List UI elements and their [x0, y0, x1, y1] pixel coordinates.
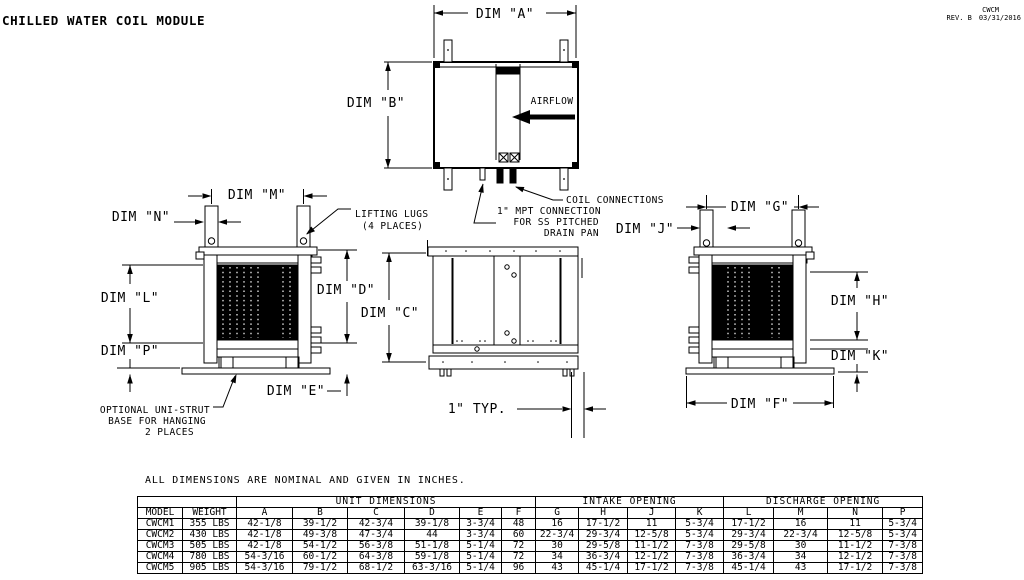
model-cell: CWCM1 — [138, 519, 183, 530]
table-cell: 905 LBS — [183, 563, 237, 574]
table-cell: 355 LBS — [183, 519, 237, 530]
table-cell: 72 — [502, 552, 536, 563]
column-header-d: D — [405, 508, 460, 519]
table-cell: 5-3/4 — [676, 519, 724, 530]
table-cell: 12-5/8 — [628, 530, 676, 541]
table-cell: 12-5/8 — [828, 530, 883, 541]
table-cell: 64-3/8 — [348, 552, 405, 563]
unistrut-label-1: OPTIONAL UNI-STRUT — [100, 405, 210, 416]
airflow-label: AIRFLOW — [531, 96, 574, 107]
column-header-n: N — [828, 508, 883, 519]
column-header-l: L — [724, 508, 774, 519]
column-header-h: H — [579, 508, 628, 519]
model-cell: CWCM2 — [138, 530, 183, 541]
dim-g-label: DIM "G" — [731, 200, 789, 215]
table-cell: 11 — [628, 519, 676, 530]
drawing-views: DIM "A" AIRFLOW — [0, 0, 1024, 470]
column-header-e: E — [460, 508, 502, 519]
column-header-a: A — [237, 508, 293, 519]
table-cell: 3-3/4 — [460, 530, 502, 541]
table-cell: 54-1/2 — [293, 541, 348, 552]
column-header-m: M — [774, 508, 828, 519]
dim-f-label: DIM "F" — [731, 397, 789, 412]
dim-h-label: DIM "H" — [831, 294, 889, 309]
column-header-p: P — [883, 508, 923, 519]
model-cell: CWCM4 — [138, 552, 183, 563]
table-cell: 63-3/16 — [405, 563, 460, 574]
dim-b-label: DIM "B" — [347, 96, 405, 111]
mpt-connection-label-3: DRAIN PAN — [544, 228, 599, 239]
side-view-right-drawing: DIM "G" DIM "J" — [616, 195, 889, 412]
table-row: CWCM3505 LBS42-1/854-1/256-3/851-1/85-1/… — [138, 541, 923, 552]
dim-c-label: DIM "C" — [361, 306, 419, 321]
group-header-intake-opening: INTAKE OPENING — [536, 497, 724, 508]
table-cell: 16 — [536, 519, 579, 530]
airflow-arrow — [512, 110, 530, 124]
column-header-model: MODEL — [138, 508, 183, 519]
table-cell: 12-1/2 — [628, 552, 676, 563]
table-cell: 72 — [502, 541, 536, 552]
dimensions-table: UNIT DIMENSIONSINTAKE OPENINGDISCHARGE O… — [137, 496, 923, 574]
column-header-j: J — [628, 508, 676, 519]
table-cell: 3-3/4 — [460, 519, 502, 530]
table-cell: 42-3/4 — [348, 519, 405, 530]
table-cell: 22-3/4 — [774, 530, 828, 541]
model-cell: CWCM5 — [138, 563, 183, 574]
dimensions-note: ALL DIMENSIONS ARE NOMINAL AND GIVEN IN … — [145, 475, 466, 486]
lifting-lugs-label-2: (4 PLACES) — [362, 221, 423, 232]
table-row: CWCM4780 LBS54-3/1660-1/264-3/859-1/85-1… — [138, 552, 923, 563]
table-cell: 79-1/2 — [293, 563, 348, 574]
dim-a-label: DIM "A" — [476, 7, 534, 22]
table-cell: 29-3/4 — [724, 530, 774, 541]
dim-d-label: DIM "D" — [317, 283, 375, 298]
table-cell: 11 — [828, 519, 883, 530]
table-corner-cell — [138, 497, 237, 508]
dim-l-label: DIM "L" — [101, 291, 159, 306]
dim-e-label: DIM "E" — [267, 384, 325, 399]
column-header-b: B — [293, 508, 348, 519]
table-cell: 59-1/8 — [405, 552, 460, 563]
table-cell: 44 — [405, 530, 460, 541]
lifting-lugs-label-1: LIFTING LUGS — [355, 209, 428, 220]
table-cell: 42-1/8 — [237, 541, 293, 552]
table-cell: 36-3/4 — [724, 552, 774, 563]
table-cell: 5-3/4 — [883, 530, 923, 541]
table-cell: 43 — [774, 563, 828, 574]
table-cell: 17-1/2 — [828, 563, 883, 574]
table-cell: 5-1/4 — [460, 552, 502, 563]
table-cell: 17-1/2 — [579, 519, 628, 530]
dim-j-label: DIM "J" — [616, 222, 674, 237]
dim-n-label: DIM "N" — [112, 210, 170, 225]
table-cell: 430 LBS — [183, 530, 237, 541]
table-cell: 34 — [774, 552, 828, 563]
column-header-k: K — [676, 508, 724, 519]
table-cell: 96 — [502, 563, 536, 574]
mpt-connection-label-1: 1" MPT CONNECTION — [497, 206, 601, 217]
dim-k-label: DIM "K" — [831, 349, 889, 364]
table-row: CWCM2430 LBS42-1/849-3/847-3/4443-3/4602… — [138, 530, 923, 541]
table-cell: 45-1/4 — [579, 563, 628, 574]
column-header-c: C — [348, 508, 405, 519]
table-cell: 42-1/8 — [237, 519, 293, 530]
table-cell: 39-1/8 — [405, 519, 460, 530]
plan-view-drawing: DIM "A" AIRFLOW — [347, 5, 664, 239]
table-cell: 29-3/4 — [579, 530, 628, 541]
table-cell: 30 — [536, 541, 579, 552]
table-cell: 5-3/4 — [676, 530, 724, 541]
table-cell: 54-3/16 — [237, 563, 293, 574]
drawing-sheet: CHILLED WATER COIL MODULE CWCM REV. B03/… — [0, 0, 1024, 580]
group-header-unit-dimensions: UNIT DIMENSIONS — [237, 497, 536, 508]
table-group-header-row: UNIT DIMENSIONSINTAKE OPENINGDISCHARGE O… — [138, 497, 923, 508]
model-cell: CWCM3 — [138, 541, 183, 552]
table-cell: 54-3/16 — [237, 552, 293, 563]
table-cell: 22-3/4 — [536, 530, 579, 541]
table-cell: 60-1/2 — [293, 552, 348, 563]
column-header-g: G — [536, 508, 579, 519]
table-cell: 68-1/2 — [348, 563, 405, 574]
table-cell: 36-3/4 — [579, 552, 628, 563]
mpt-connection-label-2: FOR SS PITCHED — [513, 217, 599, 228]
column-header-weight: WEIGHT — [183, 508, 237, 519]
table-cell: 30 — [774, 541, 828, 552]
column-header-f: F — [502, 508, 536, 519]
table-column-header-row: MODELWEIGHTABCDEFGHJKLMNP — [138, 508, 923, 519]
dim-p-label: DIM "P" — [101, 344, 159, 359]
table-cell: 45-1/4 — [724, 563, 774, 574]
table-cell: 48 — [502, 519, 536, 530]
table-row: CWCM5905 LBS54-3/1679-1/268-1/263-3/165-… — [138, 563, 923, 574]
table-row: CWCM1355 LBS42-1/839-1/242-3/439-1/83-3/… — [138, 519, 923, 530]
table-cell: 11-1/2 — [828, 541, 883, 552]
table-cell: 60 — [502, 530, 536, 541]
typ-dimension-label: 1" TYP. — [448, 402, 506, 417]
table-cell: 7-3/8 — [676, 552, 724, 563]
table-cell: 12-1/2 — [828, 552, 883, 563]
dim-m-label: DIM "M" — [228, 188, 286, 203]
table-cell: 11-1/2 — [628, 541, 676, 552]
table-cell: 56-3/8 — [348, 541, 405, 552]
table-cell: 7-3/8 — [883, 541, 923, 552]
table-cell: 34 — [536, 552, 579, 563]
table-cell: 780 LBS — [183, 552, 237, 563]
table-cell: 7-3/8 — [883, 563, 923, 574]
table-cell: 7-3/8 — [676, 563, 724, 574]
table-cell: 29-5/8 — [724, 541, 774, 552]
table-cell: 505 LBS — [183, 541, 237, 552]
table-cell: 5-3/4 — [883, 519, 923, 530]
table-cell: 16 — [774, 519, 828, 530]
unistrut-label-2: BASE FOR HANGING — [108, 416, 206, 427]
unistrut-label-3: 2 PLACES — [145, 427, 194, 438]
table-cell: 17-1/2 — [628, 563, 676, 574]
group-header-discharge-opening: DISCHARGE OPENING — [724, 497, 923, 508]
table-cell: 39-1/2 — [293, 519, 348, 530]
table-cell: 7-3/8 — [676, 541, 724, 552]
table-cell: 5-1/4 — [460, 563, 502, 574]
table-cell: 47-3/4 — [348, 530, 405, 541]
table-cell: 5-1/4 — [460, 541, 502, 552]
table-cell: 43 — [536, 563, 579, 574]
table-cell: 29-5/8 — [579, 541, 628, 552]
table-cell: 51-1/8 — [405, 541, 460, 552]
table-cell: 42-1/8 — [237, 530, 293, 541]
table-cell: 49-3/8 — [293, 530, 348, 541]
front-view-drawing: DIM "C" 1" TYP. — [361, 240, 606, 438]
coil-connections-label: COIL CONNECTIONS — [566, 195, 664, 206]
table-cell: 17-1/2 — [724, 519, 774, 530]
table-cell: 7-3/8 — [883, 552, 923, 563]
